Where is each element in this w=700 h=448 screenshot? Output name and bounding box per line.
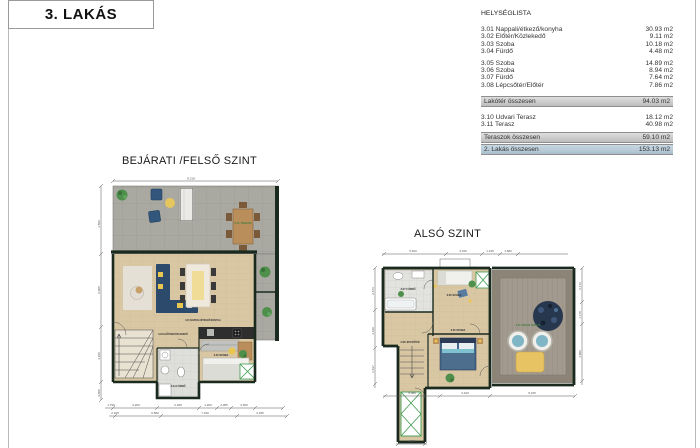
apartment-title: 3. LAKÁS xyxy=(45,6,117,23)
terrace310-label: 3.10 UDVARI TERASZ xyxy=(516,324,541,327)
kitchen-counter xyxy=(199,327,255,339)
svg-text:5.080: 5.080 xyxy=(408,391,416,395)
svg-text:1.260: 1.260 xyxy=(204,403,212,407)
svg-text:6.580: 6.580 xyxy=(151,411,159,415)
svg-text:4.005: 4.005 xyxy=(97,389,101,397)
room-row: 3.02 Előtér/Közlekedő9.11 m2 xyxy=(481,33,673,40)
svg-text:3.200: 3.200 xyxy=(132,403,140,407)
svg-text:1.170: 1.170 xyxy=(578,311,582,319)
svg-text:7.230: 7.230 xyxy=(201,411,209,415)
terrace-row: 3.11 Terasz40.98 m2 xyxy=(481,121,673,128)
upper-dim-left: 1.500 0.905 4.250 4.005 xyxy=(97,184,103,402)
room-row: 3.01 Nappali/étkező/konyha30.93 m2 xyxy=(481,26,673,33)
upper-dim-top: 8.218 xyxy=(111,177,280,184)
svg-text:1.445: 1.445 xyxy=(486,249,494,253)
room-list-table: HELYSÉGLISTA 3.01 Nappali/étkező/konyha3… xyxy=(481,10,673,155)
svg-text:2.673: 2.673 xyxy=(371,287,375,295)
svg-text:5.400: 5.400 xyxy=(409,249,417,253)
upper-floor-title: BEJÁRATI /FELSŐ SZINT xyxy=(122,155,257,167)
plan-sheet: 3. LAKÁS HELYSÉGLISTA 3.01 Nappali/étkez… xyxy=(0,0,700,448)
stairs xyxy=(115,330,153,378)
living-label: 3.01 NAPPALI/ÉTKEZŐ/KONYHA xyxy=(185,319,221,322)
lower-dim-right: 2.172 1.170 3.880 xyxy=(578,266,584,385)
outdoor-lamp xyxy=(165,198,175,208)
upper-interior: 3.01 NAPPALI/ÉTKEZŐ/KONYHA 3.02 ELŐTÉR/K… xyxy=(111,252,278,398)
lower-interior: 3.07 FÜRDŐ 3.06 SZOBA 3.05 SZOBA 3.08 LÉ… xyxy=(383,268,490,442)
lower-floor-title: ALSÓ SZINT xyxy=(414,228,481,240)
svg-text:1.580: 1.580 xyxy=(504,249,512,253)
room306-label: 3.06 SZOBA xyxy=(447,293,462,297)
stairs308-label: 3.08 LÉPCSŐTÉR xyxy=(400,341,419,344)
lower-dim-left: 2.673 3.190 2.537 xyxy=(371,266,377,388)
grand-total-bar: 2. Lakás összesen153.13 m2 xyxy=(481,144,673,155)
svg-text:5.435: 5.435 xyxy=(528,391,536,395)
svg-text:1.790: 1.790 xyxy=(107,403,115,407)
shaft-column xyxy=(401,392,421,436)
svg-text:8.218: 8.218 xyxy=(187,177,195,181)
room-row: 3.08 Lépcsőtér/Előtér7.86 m2 xyxy=(481,82,673,89)
room-row: 3.07 Fürdő7.64 m2 xyxy=(481,74,673,81)
room-row: 3.04 Fürdő4.48 m2 xyxy=(481,48,673,55)
lower-floor-plan: 5.400 3.150 1.445 1.580 2.673 3.190 2.53… xyxy=(368,246,590,448)
shaft xyxy=(476,272,490,288)
svg-text:3.420: 3.420 xyxy=(461,391,469,395)
svg-text:1.480: 1.480 xyxy=(407,439,415,443)
svg-text:3.150: 3.150 xyxy=(459,249,467,253)
plant-icon xyxy=(239,350,247,358)
shaft xyxy=(240,364,255,379)
room305-label: 3.05 SZOBA xyxy=(451,328,466,332)
svg-text:2.405: 2.405 xyxy=(111,411,119,415)
upper-dim-bottom: 1.790 3.200 2.180 1.260 2.385 3.300 2.40… xyxy=(105,403,289,418)
room-row: 3.05 Szoba14.89 m2 xyxy=(481,60,673,67)
coffee-table xyxy=(136,287,143,294)
svg-text:2.172: 2.172 xyxy=(578,282,582,290)
svg-text:3.190: 3.190 xyxy=(371,327,375,335)
room-row: 3.03 Szoba10.18 m2 xyxy=(481,41,673,48)
terrace-label: 3.11 TERASZ xyxy=(234,221,252,225)
bathroom xyxy=(158,348,198,397)
outdoor-sofa xyxy=(180,188,193,221)
sheet-left-border xyxy=(8,0,9,448)
hall-label: 3.02 ELŐTÉR/KÖZLEKEDŐ xyxy=(158,333,188,336)
toilet-icon xyxy=(178,367,185,377)
terrace-total-bar: Teraszok összesen59.10 m2 xyxy=(481,132,673,143)
apartment-title-box: 3. LAKÁS xyxy=(8,0,154,29)
svg-text:3.880: 3.880 xyxy=(578,350,582,358)
upper-floor-plan: 8.218 1.500 0.905 4.250 4.005 xyxy=(95,172,293,430)
terrace-row: 3.10 Udvari Terasz18.12 m2 xyxy=(481,114,673,121)
plant-icon xyxy=(398,291,404,297)
terrace-right-wall xyxy=(275,186,279,341)
bathroom-307 xyxy=(385,270,433,312)
svg-text:2.180: 2.180 xyxy=(174,403,182,407)
svg-text:4.250: 4.250 xyxy=(97,352,101,360)
svg-text:3.185: 3.185 xyxy=(256,411,264,415)
desk-chair xyxy=(229,348,236,355)
sheet-right-border xyxy=(695,0,696,448)
room-list-heading: HELYSÉGLISTA xyxy=(481,10,673,17)
room303-label: 3.03 SZOBA xyxy=(214,353,229,357)
courtyard-terrace: 3.10 UDVARI TERASZ xyxy=(492,268,574,385)
lower-dim-top: 5.400 3.150 1.445 1.580 xyxy=(382,249,568,256)
plant-icon xyxy=(446,374,455,383)
living-total-bar: Lakótér összesen94.03 m2 xyxy=(481,96,673,107)
svg-text:2.385: 2.385 xyxy=(220,403,228,407)
svg-text:3.300: 3.300 xyxy=(240,403,248,407)
svg-text:0.905: 0.905 xyxy=(97,286,101,294)
svg-text:1.500: 1.500 xyxy=(97,220,101,228)
sink-icon xyxy=(393,273,403,280)
plant-icon xyxy=(469,281,476,288)
plant-icon xyxy=(117,190,128,201)
terrace-table xyxy=(516,352,544,372)
svg-text:2.537: 2.537 xyxy=(371,365,375,373)
room-row: 3.06 Szoba8.94 m2 xyxy=(481,67,673,74)
